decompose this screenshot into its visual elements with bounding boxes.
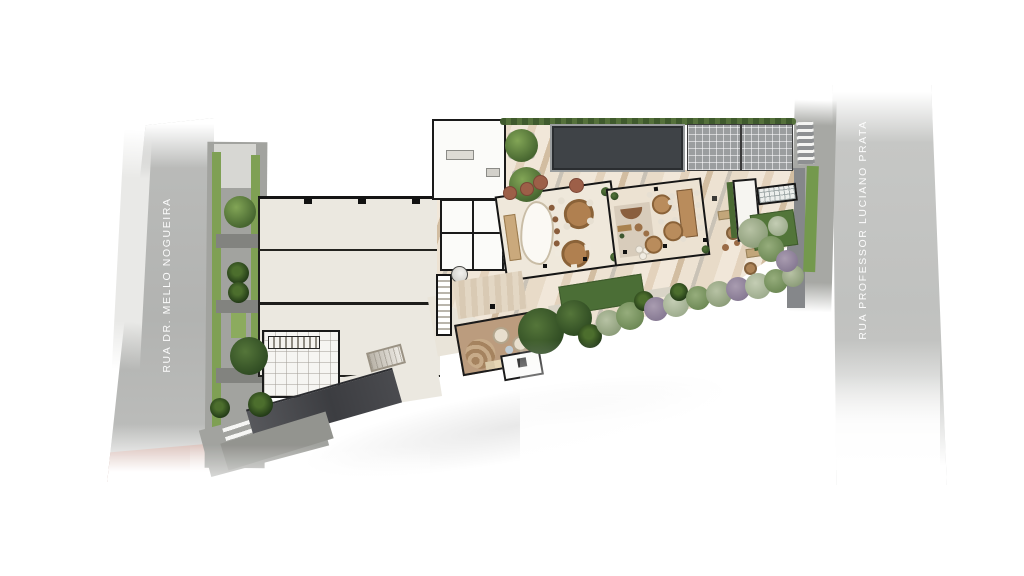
- column-marker: [663, 244, 667, 248]
- round-table: [491, 326, 511, 346]
- stool-icon: [548, 204, 555, 211]
- palm-tree-icon: [227, 262, 249, 284]
- kitchen-counter: [446, 150, 474, 160]
- column-marker: [712, 196, 717, 201]
- core-partition-v1: [472, 200, 474, 270]
- stool-icon: [554, 228, 561, 235]
- chair-icon: [586, 217, 594, 225]
- street-right-fade-top: [822, 85, 952, 143]
- column-marker: [654, 187, 658, 191]
- dark-roof-slab: [552, 126, 683, 170]
- fade-bottom-left: [190, 445, 430, 515]
- stool-icon: [552, 216, 559, 223]
- chair-icon: [555, 250, 562, 257]
- palm-tree-icon: [210, 398, 230, 418]
- column-marker: [623, 250, 627, 254]
- palm-tree-icon: [248, 392, 273, 417]
- round-planter-icon: [533, 175, 548, 190]
- chair-icon: [557, 197, 565, 205]
- fade-bottom-right: [520, 340, 940, 470]
- site-plan-canvas: RUA DR. MELLO NOGUEIRA RUA PROFESSOR LUC…: [0, 0, 1024, 576]
- bush-icon: [776, 250, 798, 272]
- palm-tree-icon: [228, 282, 249, 303]
- chair-icon: [698, 224, 705, 231]
- chair-icon: [696, 214, 703, 221]
- bar-counter: [503, 214, 521, 261]
- street-left-label: RUA DR. MELLO NOGUEIRA: [161, 165, 175, 405]
- chair-icon: [563, 222, 571, 230]
- chair-icon: [695, 202, 702, 209]
- stair-shaft-vertical: [436, 274, 452, 336]
- planter-pot-icon: [722, 244, 729, 251]
- dining-lounge-room: [606, 177, 711, 266]
- round-planter-icon: [503, 186, 517, 200]
- round-planter-icon: [520, 182, 534, 196]
- tactile-paving-strip: [796, 122, 814, 165]
- street-left-fade-top: [100, 118, 220, 168]
- chair-icon: [646, 191, 653, 198]
- chair-icon: [586, 199, 594, 207]
- chair-icon: [680, 236, 687, 243]
- column-marker: [543, 264, 547, 268]
- chair-icon: [693, 190, 700, 197]
- pouf-icon: [639, 252, 648, 261]
- chair-icon: [658, 218, 665, 225]
- slab-division-line-2: [258, 302, 437, 305]
- driveway-band-1: [216, 234, 264, 248]
- slab-division-line-1: [258, 249, 437, 251]
- chair-icon: [584, 244, 591, 251]
- shrub-icon: [701, 245, 710, 254]
- bush-icon: [230, 337, 268, 375]
- shrub-icon: [610, 192, 619, 201]
- stair-run-tiled-room: [268, 336, 320, 349]
- stool-icon: [553, 240, 560, 247]
- glass-grid-roof-division: [740, 124, 742, 171]
- column-marker: [703, 238, 707, 242]
- fixture-block: [486, 168, 500, 177]
- round-planter-icon: [569, 178, 584, 193]
- column-marker: [583, 257, 587, 261]
- tree-icon: [224, 196, 256, 228]
- lawn-patch-left: [231, 313, 246, 338]
- chair-icon: [571, 264, 578, 271]
- column-marker: [490, 304, 495, 309]
- tree-icon: [505, 129, 538, 162]
- bush-icon: [768, 216, 788, 236]
- slab-column-ticks: [258, 199, 438, 204]
